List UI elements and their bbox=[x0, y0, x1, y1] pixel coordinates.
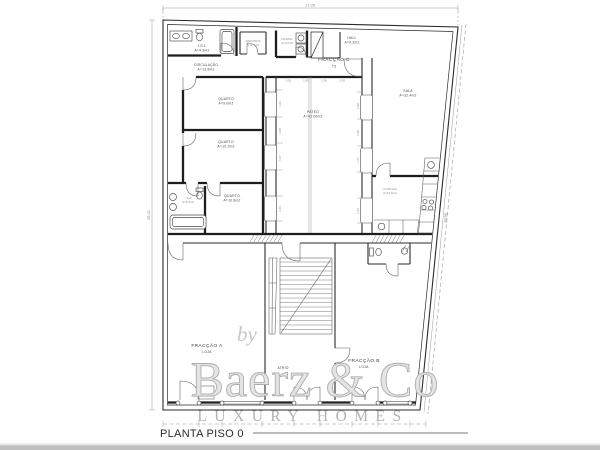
room-label-sala: SALA bbox=[403, 89, 413, 93]
dimension-top: 17.35 bbox=[163, 3, 458, 27]
room-area-circulacao: A=13.9m2 bbox=[197, 68, 214, 72]
fraction-a-label: FRACÇÃO A bbox=[191, 342, 223, 349]
watermark: by Baerz & Co LUXURY HOMES bbox=[191, 322, 440, 425]
dim-top-value: 17.35 bbox=[305, 3, 316, 8]
sink-icon bbox=[378, 223, 385, 230]
patio-dim: 1.06 bbox=[285, 79, 291, 83]
floor-plan-page: 17.35 28.41 29.96 bbox=[0, 0, 600, 450]
toilet-icon bbox=[370, 248, 374, 256]
room-area-arrumos: A=1.7m2 bbox=[247, 43, 259, 47]
patio-dim: 3.98 bbox=[278, 128, 282, 134]
patio-dim: 1.90 bbox=[321, 79, 327, 83]
patio-dim: 1.03 bbox=[278, 101, 282, 107]
washbasin-icon bbox=[183, 33, 190, 38]
kitchen-counter bbox=[374, 158, 440, 233]
room-area-is2: A=5.0m2 bbox=[182, 200, 194, 204]
room-label-hall: HALL bbox=[347, 36, 356, 40]
patio-dim: 1.07 bbox=[356, 157, 360, 163]
title-block: PLANTA PISO 0 bbox=[160, 428, 468, 440]
watermark-by: by bbox=[237, 322, 258, 346]
toilet-icon bbox=[196, 30, 203, 34]
staircase bbox=[269, 258, 332, 334]
room-labels: I.S.1 A=4.5m2 ARRUMOS A=1.7m2 LAVAND. A=… bbox=[182, 36, 417, 370]
patio-dim: 1.07 bbox=[278, 155, 282, 161]
stove-icon bbox=[423, 199, 427, 203]
room-label-is1: I.S.1 bbox=[198, 44, 206, 48]
apartment-walls bbox=[168, 27, 438, 243]
patio-dim: 3.98 bbox=[356, 130, 360, 136]
room-area-lavand: A=3.8m2 bbox=[281, 41, 293, 45]
room-area-quarto2: A=10.2m2 bbox=[217, 145, 234, 149]
watermark-brand: Baerz & Co bbox=[191, 351, 440, 407]
patio-dim: 1.80 bbox=[303, 79, 309, 83]
dim-left-value: 28.41 bbox=[146, 209, 151, 220]
watermark-tagline: LUXURY HOMES bbox=[197, 408, 408, 425]
room-area-quarto3: A=10.8m2 bbox=[223, 199, 240, 203]
toilet-icon bbox=[196, 188, 203, 192]
drawing-title: PLANTA PISO 0 bbox=[160, 428, 244, 440]
dimension-left: 28.41 bbox=[146, 20, 155, 410]
stair-break-line bbox=[281, 259, 331, 333]
room-area-pateo: A=42.00m2 bbox=[303, 115, 322, 119]
room-area-is1: A=4.5m2 bbox=[194, 49, 209, 53]
fraction-c-label: FRACÇÃO C bbox=[318, 56, 350, 63]
wall-hatch-blocks bbox=[250, 235, 404, 243]
washbasin-icon bbox=[173, 33, 180, 38]
room-area-sala: A=32.4m2 bbox=[399, 94, 416, 98]
room-label-quarto2: QUARTO bbox=[218, 140, 234, 144]
patio-dim: 3.46 bbox=[356, 208, 360, 214]
room-label-circulacao: CIRCULAÇÃO bbox=[194, 62, 218, 67]
room-label-quarto3: QUARTO bbox=[224, 194, 240, 198]
room-area-hall: A=9.2m2 bbox=[344, 41, 359, 45]
patio-dimension-ticks: 1.06 1.80 1.90 1.90 1.03 3.98 1.07 3.46 … bbox=[277, 79, 363, 224]
patio-dim: 0.95 bbox=[356, 103, 360, 109]
fracb-wc bbox=[368, 243, 410, 264]
room-area-cozinha: A=16.8m2 bbox=[383, 191, 397, 195]
is2-fixtures bbox=[170, 188, 207, 229]
sink-icon bbox=[428, 162, 435, 169]
patio-dim: 1.90 bbox=[339, 79, 345, 83]
floor-plan-canvas: 17.35 28.41 29.96 bbox=[0, 0, 600, 450]
room-area-quarto1: A=9.0m2 bbox=[218, 102, 233, 106]
patio-dim: 3.46 bbox=[278, 206, 282, 212]
room-label-pateo: PATEO bbox=[307, 110, 319, 114]
washbasin-icon bbox=[170, 194, 177, 201]
room-label-quarto1: QUARTO bbox=[218, 97, 234, 101]
photo-bottom-edge bbox=[0, 444, 600, 450]
dim-right-value: 29.96 bbox=[442, 212, 448, 223]
fraction-c-type: T3 bbox=[332, 65, 336, 69]
bidet-icon bbox=[170, 204, 177, 211]
